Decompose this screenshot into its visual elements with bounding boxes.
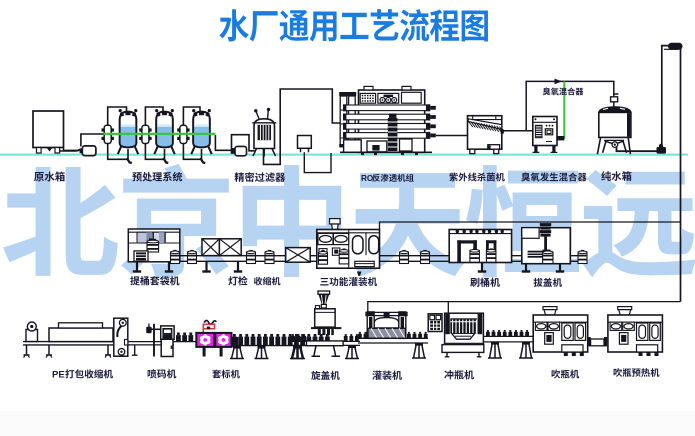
svg-text:RO: RO bbox=[361, 174, 374, 183]
svg-text:PE: PE bbox=[52, 370, 65, 381]
